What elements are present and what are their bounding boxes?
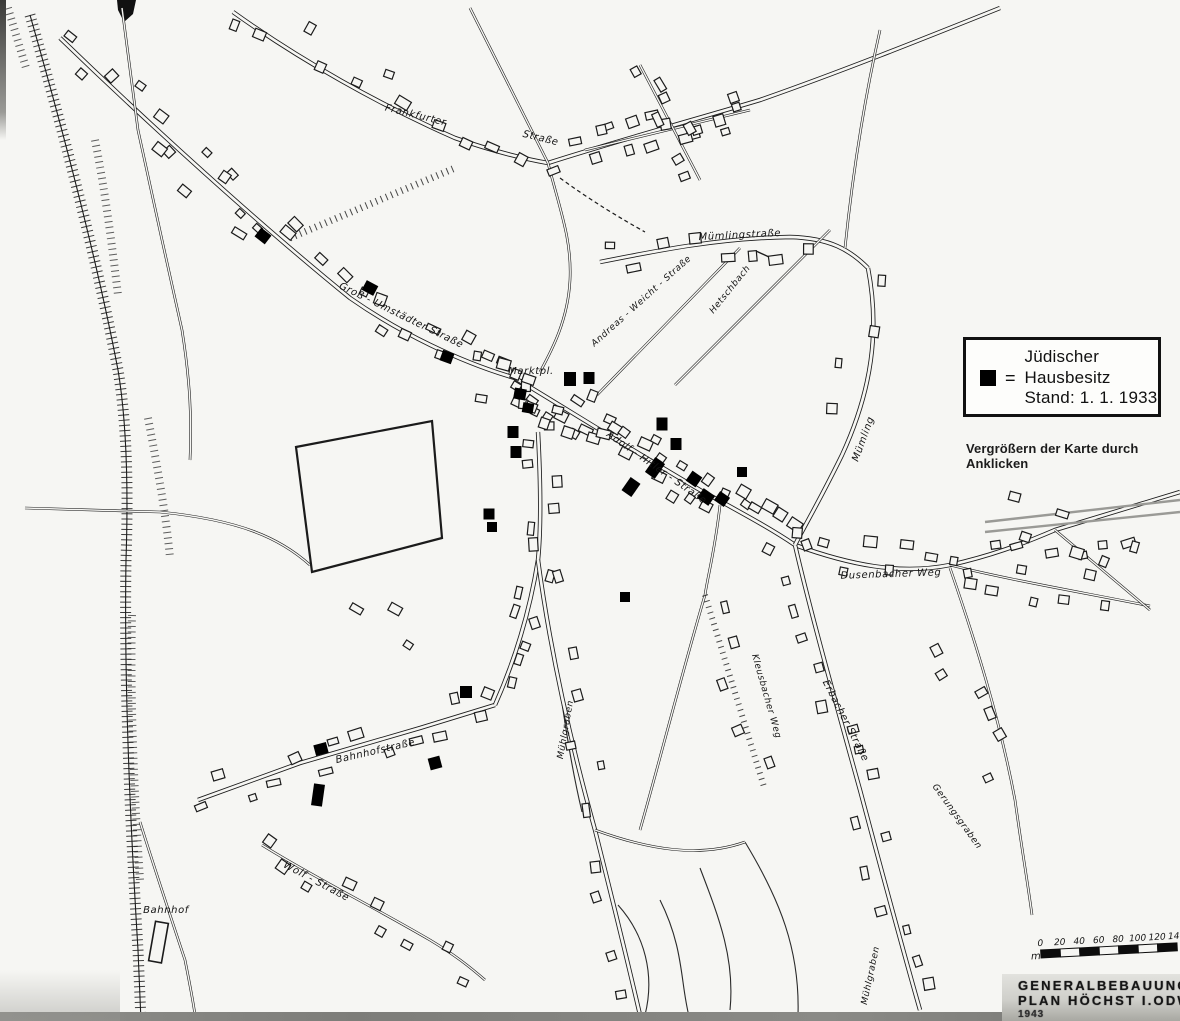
- jewish-house-marker: [513, 388, 527, 401]
- scale-segment: [1099, 946, 1119, 955]
- house-outline: [1045, 548, 1058, 558]
- house-outline: [384, 69, 395, 79]
- house-outline: [835, 358, 842, 368]
- house-outline: [590, 891, 601, 903]
- house-outline: [231, 227, 246, 240]
- legend-line-3: Stand: 1. 1. 1933: [1025, 388, 1158, 409]
- house-outline: [728, 91, 740, 103]
- house-outline: [318, 767, 333, 776]
- jewish-house-marker: [508, 426, 519, 438]
- jewish-house-marker: [621, 477, 640, 497]
- house-outline: [713, 114, 726, 127]
- house-outline: [963, 568, 972, 578]
- house-outline: [1010, 542, 1023, 551]
- house-outline: [211, 769, 225, 781]
- house-outline: [457, 977, 468, 987]
- house-outline: [925, 552, 938, 561]
- scale-tick-label: 80: [1112, 935, 1124, 946]
- enlarge-hint-caption: Vergrößern der Karte durch Anklicken: [966, 441, 1180, 471]
- scale-tick-label: 40: [1073, 937, 1085, 948]
- house-outline: [676, 461, 687, 471]
- house-outline: [194, 802, 207, 812]
- street-label: Kleusbacher Weg: [749, 653, 783, 740]
- house-outline: [248, 794, 257, 802]
- scan-edge-left: [0, 0, 6, 140]
- house-outline: [903, 925, 911, 935]
- house-outline: [1008, 491, 1021, 502]
- house-outline: [569, 137, 582, 146]
- house-outline: [900, 540, 914, 550]
- scale-segment: [1041, 949, 1061, 958]
- house-outline: [474, 710, 487, 722]
- house-outline: [721, 127, 731, 135]
- house-outline: [229, 19, 240, 31]
- house-outline: [597, 761, 604, 770]
- house-outline: [605, 242, 614, 249]
- house-outline: [342, 877, 357, 890]
- house-outline: [401, 939, 413, 950]
- stream-line: [30, 15, 141, 1021]
- house-outline: [975, 687, 988, 699]
- house-outline: [869, 326, 880, 338]
- house-outline: [804, 244, 814, 254]
- house-outline: [473, 351, 482, 361]
- jewish-house-marker: [737, 467, 747, 477]
- house-outline: [587, 389, 598, 402]
- house-outline: [348, 727, 364, 741]
- house-outline: [315, 252, 328, 265]
- street-casing: [548, 8, 1000, 163]
- house-outline: [523, 440, 534, 448]
- scale-tick-label: 100: [1129, 933, 1147, 944]
- house-outline: [482, 350, 495, 361]
- house-outline: [731, 102, 741, 112]
- town-map[interactable]: FrankfurterStraßeGroß - Umstädter Straße…: [0, 0, 1180, 1021]
- jewish-house-marker: [564, 372, 576, 386]
- house-outline: [1101, 601, 1110, 611]
- house-outline: [912, 955, 922, 967]
- house-outline: [510, 604, 520, 618]
- house-outline: [721, 253, 735, 262]
- house-outline: [1099, 556, 1110, 568]
- house-outline: [850, 816, 860, 830]
- house-outline: [930, 643, 943, 657]
- house-outline: [630, 66, 641, 78]
- house-outline: [596, 124, 607, 135]
- legend-text: Jüdischer Hausbesitz Stand: 1. 1. 1933: [1025, 347, 1158, 409]
- street-network-layer: [25, 8, 1180, 1015]
- house-outline: [624, 144, 634, 156]
- house-outline: [654, 77, 667, 92]
- house-outline: [666, 490, 679, 503]
- house-outline: [177, 184, 191, 198]
- path-hatching: [705, 595, 765, 790]
- house-outline: [964, 578, 977, 590]
- house-outline: [1016, 565, 1026, 575]
- fence-hatching: [290, 168, 455, 238]
- scale-segment: [1138, 944, 1158, 953]
- street-label: Gerungsgraben: [930, 782, 984, 851]
- house-outline: [788, 604, 798, 618]
- house-outline: [552, 570, 563, 584]
- house-outline: [75, 68, 87, 80]
- house-outline: [644, 140, 659, 153]
- scale-bar: 020406080100120140m: [1030, 931, 1180, 962]
- house-outline: [450, 692, 460, 704]
- house-outline: [403, 640, 413, 650]
- street-casing: [60, 38, 515, 378]
- jewish-house-marker: [657, 418, 668, 431]
- street-label: Mühlgraben: [860, 945, 882, 1005]
- house-outline: [728, 636, 739, 649]
- jewish-house-marker: [584, 372, 595, 384]
- house-outline: [375, 926, 386, 938]
- house-outline: [507, 677, 516, 689]
- jewish-house-marker: [487, 522, 497, 532]
- house-outline: [475, 394, 487, 403]
- house-outline: [1029, 597, 1038, 607]
- house-outline: [1058, 595, 1069, 605]
- house-outline: [528, 538, 538, 552]
- jewish-house-marker: [671, 438, 682, 450]
- house-outline: [935, 669, 947, 681]
- rail-line: [985, 500, 1180, 522]
- jewish-house-marker: [428, 756, 443, 771]
- house-outline: [520, 641, 531, 651]
- scale-segment: [1157, 943, 1177, 952]
- house-outline: [881, 832, 891, 842]
- house-outline: [1055, 509, 1069, 519]
- house-outline: [721, 601, 730, 614]
- house-outline: [796, 633, 808, 643]
- house-outline: [375, 325, 388, 337]
- house-outline: [768, 254, 783, 265]
- house-outline: [481, 687, 495, 700]
- house-outline: [652, 112, 664, 128]
- legend-line-1: Jüdischer: [1025, 347, 1158, 368]
- map-drawing: FrankfurterStraßeGroß - Umstädter Straße…: [0, 0, 1180, 1021]
- street-casing: [795, 492, 1180, 569]
- house-outline: [672, 153, 684, 165]
- street-label: Frankfurter: [384, 103, 448, 129]
- house-outline: [764, 756, 775, 769]
- street-label: Bahnhof: [143, 905, 190, 916]
- house-outline: [527, 522, 534, 535]
- scale-segment: [1119, 945, 1139, 954]
- plan-title: GENERALBEBAUUNGS- PLAN HÖCHST I.ODW 1943: [1018, 979, 1180, 1020]
- house-outline: [762, 543, 775, 556]
- house-outline: [626, 263, 641, 273]
- house-outline: [589, 152, 602, 165]
- house-outline: [266, 778, 281, 787]
- house-outline: [606, 951, 617, 962]
- house-outline: [590, 861, 601, 873]
- house-outline: [304, 22, 316, 35]
- house-outline: [154, 109, 169, 124]
- house-outline: [701, 473, 714, 486]
- house-outline: [679, 171, 691, 181]
- jewish-house-marker: [620, 592, 630, 602]
- house-outline: [135, 80, 146, 91]
- scale-tick-label: 0: [1037, 939, 1044, 949]
- scale-tick-label: 140: [1168, 931, 1180, 942]
- house-outline: [626, 115, 640, 128]
- house-outline: [990, 540, 1001, 549]
- legend-equals: =: [1005, 368, 1016, 389]
- house-outline: [529, 617, 541, 630]
- house-outline: [571, 395, 585, 407]
- house-outline: [548, 503, 559, 513]
- bahnhof-building: [149, 921, 169, 963]
- house-outline: [878, 275, 886, 286]
- house-outline: [349, 603, 363, 615]
- jewish-house-marker: [460, 686, 472, 698]
- house-outline: [993, 728, 1006, 742]
- house-outline: [732, 724, 745, 736]
- street-label: Groß - Umstädter Straße: [337, 281, 465, 351]
- house-outline: [748, 251, 757, 262]
- house-outline: [827, 403, 838, 414]
- house-outline: [816, 700, 828, 714]
- jewish-house-marker: [484, 509, 495, 520]
- house-outline: [442, 941, 453, 953]
- legend-box: = Jüdischer Hausbesitz Stand: 1. 1. 1933: [963, 337, 1161, 417]
- stream-hatching: [30, 15, 141, 1021]
- house-outline: [863, 536, 877, 548]
- plan-title-line2: PLAN HÖCHST I.ODW: [1018, 994, 1180, 1009]
- jewish-house-symbol-icon: [980, 370, 996, 386]
- jewish-house-marker: [522, 402, 535, 414]
- street-label: Wolf - Straße: [281, 860, 351, 904]
- house-outline: [736, 484, 751, 499]
- scan-ink-blob: [117, 0, 136, 22]
- open-field: [296, 421, 442, 572]
- house-outline: [552, 476, 562, 488]
- house-outline: [860, 866, 869, 880]
- house-outline: [327, 737, 339, 746]
- house-outline: [1069, 546, 1084, 560]
- house-outline: [615, 990, 626, 999]
- house-outline: [867, 768, 879, 779]
- house-outline: [781, 576, 790, 586]
- plan-title-line1: GENERALBEBAUUNGS-: [1018, 979, 1180, 994]
- house-outline: [875, 906, 887, 917]
- house-outline: [338, 268, 353, 283]
- house-outline: [582, 803, 590, 817]
- street-label: Marktpl.: [508, 366, 554, 377]
- legend-line-2: Hausbesitz: [1025, 368, 1158, 389]
- scale-segment: [1080, 947, 1100, 956]
- jewish-houses-layer: [254, 228, 747, 807]
- house-outline: [792, 527, 802, 538]
- house-outline: [1098, 541, 1107, 550]
- scale-unit-label: m: [1031, 951, 1042, 963]
- house-outline: [717, 678, 728, 691]
- house-outline: [485, 141, 500, 153]
- house-outline: [657, 237, 670, 249]
- house-outline: [252, 28, 266, 41]
- house-outline: [202, 147, 212, 157]
- plan-title-year: 1943: [1018, 1009, 1180, 1021]
- scale-segment: [1060, 948, 1080, 957]
- jewish-house-marker: [511, 446, 522, 458]
- house-outline: [814, 662, 824, 673]
- street-label: Hetschbach: [708, 264, 753, 316]
- house-outline: [572, 689, 584, 702]
- house-outline: [923, 977, 935, 990]
- street-casing: [233, 12, 548, 163]
- house-outline: [514, 586, 523, 599]
- house-outline: [568, 647, 578, 660]
- jewish-house-marker: [311, 783, 325, 806]
- scale-tick-label: 20: [1054, 938, 1066, 949]
- scan-shadow-corner: [0, 970, 120, 1021]
- rail-line: [985, 512, 1180, 532]
- street-label: Dusenbacher Weg: [840, 567, 941, 582]
- house-outline: [950, 556, 958, 565]
- house-outline: [818, 538, 830, 548]
- house-outline: [985, 585, 998, 596]
- street-label: Mümlingstraße: [698, 228, 781, 243]
- house-outline: [522, 460, 533, 469]
- house-outline: [388, 602, 403, 616]
- house-outline: [432, 731, 447, 742]
- dashed-path: [560, 178, 645, 232]
- house-outline: [748, 502, 761, 514]
- street-label: Erbacher Straße: [820, 678, 871, 763]
- house-outline: [1084, 569, 1096, 581]
- street-label: Straße: [522, 129, 560, 149]
- scale-tick-label: 120: [1148, 932, 1166, 943]
- house-outline: [983, 773, 994, 783]
- scale-tick-label: 60: [1093, 936, 1105, 947]
